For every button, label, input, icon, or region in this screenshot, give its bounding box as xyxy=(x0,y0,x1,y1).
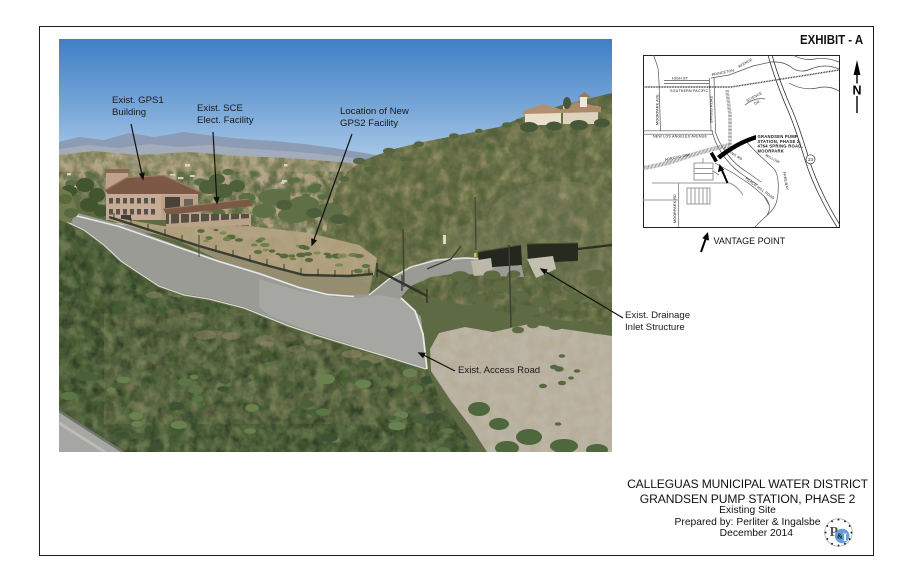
svg-text:N: N xyxy=(852,84,861,98)
svg-text:MOORPARK RD: MOORPARK RD xyxy=(673,194,677,223)
svg-text:I: I xyxy=(843,530,848,544)
svg-text:23: 23 xyxy=(808,157,814,162)
svg-text:MOORPARK: MOORPARK xyxy=(758,148,785,153)
svg-text:HIGH ST: HIGH ST xyxy=(672,77,689,81)
svg-text:NEW LOS ANGELES AVENUE: NEW LOS ANGELES AVENUE xyxy=(653,135,707,139)
svg-text:SOUTHERN PACIFIC: SOUTHERN PACIFIC xyxy=(670,89,708,93)
svg-text:MOORPARK AVE.: MOORPARK AVE. xyxy=(656,93,660,125)
svg-text:SPRING ROAD: SPRING ROAD xyxy=(710,95,714,123)
